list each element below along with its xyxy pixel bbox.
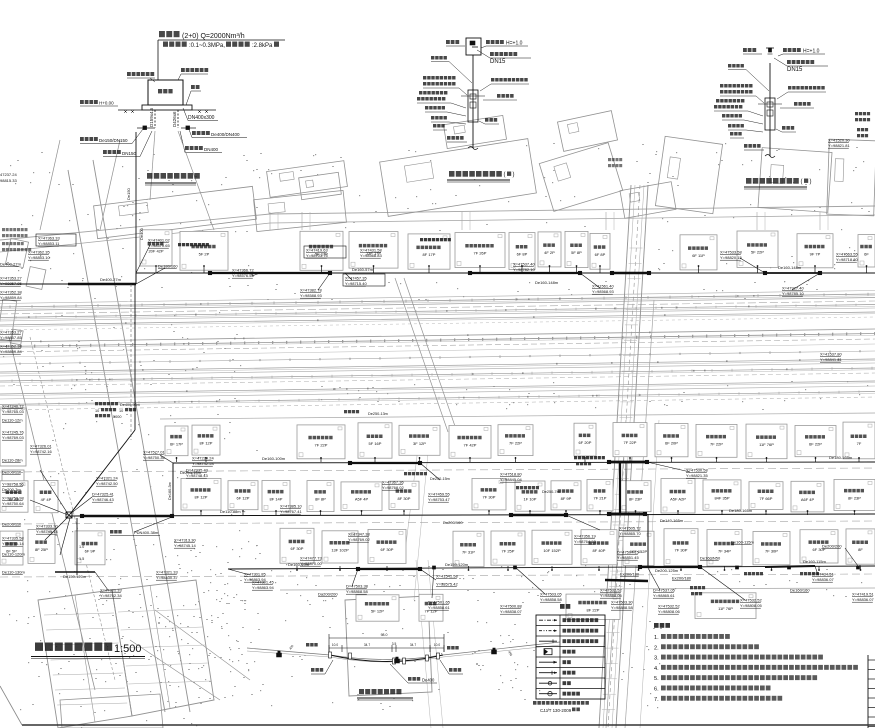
svg-text::2.8kPa: :2.8kPa <box>252 43 273 49</box>
svg-text:Ex200/180: Ex200/180 <box>672 575 692 580</box>
svg-text:6F 8P: 6F 8P <box>517 252 528 257</box>
svg-text:7F: 7F <box>857 441 862 446</box>
svg-text:Da200/200: Da200/200 <box>318 591 338 596</box>
svg-text:Y=98857.85: Y=98857.85 <box>0 335 22 340</box>
svg-text:D=47507.15: D=47507.15 <box>617 549 640 554</box>
svg-text:2.: 2. <box>654 645 659 651</box>
svg-text:Y=98865.61: Y=98865.61 <box>653 593 675 598</box>
svg-text:5F 8P: 5F 8P <box>571 250 582 255</box>
svg-text:1:500: 1:500 <box>114 643 142 655</box>
svg-text:D=47537.05: D=47537.05 <box>653 587 676 592</box>
svg-text:De200/200: De200/200 <box>822 543 842 548</box>
svg-text:Y=98769.02: Y=98769.02 <box>348 537 370 542</box>
svg-text::0.1~0.3MPa,: :0.1~0.3MPa, <box>189 43 225 49</box>
svg-text:Y=98742.16: Y=98742.16 <box>30 449 52 454</box>
svg-text:De160/N50: De160/N50 <box>700 555 721 560</box>
svg-text:8F 40P: 8F 40P <box>593 548 606 553</box>
svg-text:H=+1.0: H=+1.0 <box>803 49 820 55</box>
svg-text:De150-120m: De150-120m <box>63 574 87 579</box>
svg-text:Y=98742.50: Y=98742.50 <box>96 481 118 486</box>
svg-text:De110-12m: De110-12m <box>2 417 23 422</box>
svg-text:De200/110: De200/110 <box>2 469 22 474</box>
svg-text:Y=98859.84: Y=98859.84 <box>0 349 22 354</box>
svg-text:X=47367.36: X=47367.36 <box>382 479 404 484</box>
svg-text:Y=98821.35: Y=98821.35 <box>686 473 708 478</box>
svg-text:47237.24: 47237.24 <box>0 172 17 177</box>
svg-text:X=47245.76: X=47245.76 <box>2 429 24 434</box>
svg-text:X=47401.02: X=47401.02 <box>148 237 170 242</box>
svg-text:X=41537.80: X=41537.80 <box>820 351 842 356</box>
svg-text:1.: 1. <box>654 635 659 641</box>
svg-text:De110-130m: De110-130m <box>2 569 25 574</box>
svg-text:H=+1.0: H=+1.0 <box>506 41 523 47</box>
svg-text:Y=98838.07: Y=98838.07 <box>500 609 522 614</box>
svg-text:Y=98758.56: Y=98758.56 <box>2 481 24 486</box>
svg-text:X=47577.01: X=47577.01 <box>143 449 165 454</box>
svg-text:5F 16P: 5F 16P <box>369 441 382 446</box>
svg-text:De160-3m: De160-3m <box>168 482 172 500</box>
svg-text:10F 152P: 10F 152P <box>543 548 561 553</box>
svg-text:8F 22P: 8F 22P <box>587 607 600 612</box>
svg-text:X=47927.40: X=47927.40 <box>782 285 804 290</box>
svg-text:De200-7m: De200-7m <box>2 487 21 492</box>
svg-text:20F 42P: 20F 42P <box>148 248 163 253</box>
svg-text:8F 23P: 8F 23P <box>629 497 642 502</box>
svg-text:6.: 6. <box>654 687 659 693</box>
svg-text:5F 22P: 5F 22P <box>751 250 764 255</box>
svg-text:8F 14P: 8F 14P <box>270 496 283 501</box>
svg-text:Y=98782.10: Y=98782.10 <box>513 267 535 272</box>
svg-text:7F 22P: 7F 22P <box>624 440 637 445</box>
svg-text:H+0.00: H+0.00 <box>99 101 114 106</box>
svg-text:X=47321.33: X=47321.33 <box>100 587 122 592</box>
svg-text:X=47503.30: X=47503.30 <box>611 599 633 604</box>
svg-text:Y=98868.58: Y=98868.58 <box>346 589 368 594</box>
svg-text:6F 11P: 6F 11P <box>692 253 705 258</box>
svg-text:X=47563.55: X=47563.55 <box>836 251 858 256</box>
svg-text:X=41520.30: X=41520.30 <box>828 137 850 142</box>
svg-text:X=47352.38: X=47352.38 <box>0 343 22 348</box>
svg-text:PDN400-38m: PDN400-38m <box>134 530 159 535</box>
svg-text:Y=98746.43: Y=98746.43 <box>92 497 114 502</box>
svg-text:Y=98742.53: Y=98742.53 <box>192 461 214 466</box>
svg-text:): ) <box>513 172 515 178</box>
svg-text:10: 10 <box>119 409 123 413</box>
svg-text:8F 9P: 8F 9P <box>561 496 572 501</box>
svg-text:Y=98821.81: Y=98821.81 <box>828 143 850 148</box>
svg-text:84F 35P: 84F 35P <box>714 496 729 501</box>
svg-text:Y=98853.11: Y=98853.11 <box>38 241 60 246</box>
svg-text:X=47321.24: X=47321.24 <box>96 475 118 480</box>
svg-text:De400: De400 <box>139 227 144 240</box>
svg-text:7F 25P: 7F 25P <box>502 549 515 554</box>
svg-text:X=47353.27: X=47353.27 <box>0 329 22 334</box>
svg-text:X=47434.51: X=47434.51 <box>812 571 834 576</box>
svg-text:Y=98865.70: Y=98865.70 <box>619 531 641 536</box>
svg-text:Y=98715.40: Y=98715.40 <box>345 281 367 286</box>
svg-text:11F 76P: 11F 76P <box>759 442 774 447</box>
svg-text:De110-28m: De110-28m <box>2 457 23 462</box>
svg-text:6F: 6F <box>864 251 869 256</box>
svg-text:7.: 7. <box>654 697 659 703</box>
svg-text:Y=98888.05: Y=98888.05 <box>600 593 622 598</box>
svg-text:A5F A2P: A5F A2P <box>670 496 686 501</box>
svg-text:7F 30P: 7F 30P <box>765 549 778 554</box>
svg-text:Y=98570.65: Y=98570.65 <box>148 243 170 248</box>
svg-text:De200-125m: De200-125m <box>655 568 679 573</box>
svg-text:6F 9P: 6F 9P <box>85 548 96 553</box>
svg-text:X=47532.52: X=47532.52 <box>600 587 622 592</box>
svg-text:8F 23P: 8F 23P <box>848 495 861 500</box>
svg-text:X=41541.58: X=41541.58 <box>436 573 458 578</box>
svg-text:X=41561.40: X=41561.40 <box>592 283 614 288</box>
svg-text:8F 25P: 8F 25P <box>35 547 48 552</box>
svg-text:6F 22P: 6F 22P <box>809 442 822 447</box>
svg-text:Y=98851.45: Y=98851.45 <box>617 555 639 560</box>
svg-text:Y=98841.81: Y=98841.81 <box>820 357 842 362</box>
svg-text:X=47335.58: X=47335.58 <box>2 535 24 540</box>
svg-text:D=47335.43: D=47335.43 <box>186 467 209 472</box>
svg-text:A5F 4P: A5F 4P <box>355 497 369 502</box>
svg-text:X=47352.38: X=47352.38 <box>0 289 22 294</box>
svg-text:X=47419.51: X=47419.51 <box>852 591 874 596</box>
svg-text:5F 2P: 5F 2P <box>199 251 210 256</box>
svg-text:Y=98703.75: Y=98703.75 <box>306 253 328 258</box>
svg-text:3.: 3. <box>654 656 659 662</box>
svg-text:Y=98857.85: Y=98857.85 <box>0 281 22 286</box>
svg-text:6F 20P: 6F 20P <box>579 440 592 445</box>
svg-text:X=47353.27: X=47353.27 <box>0 275 22 280</box>
svg-text:5F 12P: 5F 12P <box>371 609 384 614</box>
svg-text:X=47333.30: X=47333.30 <box>36 523 58 528</box>
svg-text:7F 30P: 7F 30P <box>675 548 688 553</box>
svg-text:X=47532.52: X=47532.52 <box>740 597 762 602</box>
svg-text:Y=98762.34: Y=98762.34 <box>100 593 122 598</box>
svg-text:34.7: 34.7 <box>364 643 370 647</box>
svg-text:Y=98859.84: Y=98859.84 <box>0 295 22 300</box>
svg-text:Y=98785.10: Y=98785.10 <box>782 291 804 296</box>
svg-text:De400/DN400: De400/DN400 <box>211 132 240 137</box>
svg-text:Y=98575.42: Y=98575.42 <box>436 581 458 586</box>
svg-text:De110-120m: De110-120m <box>2 551 25 556</box>
svg-text:8F 17P: 8F 17P <box>423 252 436 257</box>
svg-text:6F 8P: 6F 8P <box>595 252 606 257</box>
svg-text:X=47532.52: X=47532.52 <box>658 603 680 608</box>
svg-text:Y=98750.36: Y=98750.36 <box>143 455 165 460</box>
svg-text:Du200/160: Du200/160 <box>443 520 463 525</box>
svg-text:De160-100m: De160-100m <box>262 456 286 461</box>
svg-text:7F 26P: 7F 26P <box>474 251 487 256</box>
svg-text:De160-57m: De160-57m <box>352 267 374 272</box>
svg-text:Y=98588.93: Y=98588.93 <box>300 293 322 298</box>
svg-text:D426x6: D426x6 <box>172 111 177 127</box>
svg-text:Y=98765.03: Y=98765.03 <box>2 409 24 414</box>
svg-text:Y=98748.43: Y=98748.43 <box>186 473 208 478</box>
svg-text:Y=98767.41: Y=98767.41 <box>280 509 302 514</box>
svg-text:De250-7m: De250-7m <box>542 490 560 494</box>
svg-text:X=47505.72: X=47505.72 <box>619 525 641 530</box>
svg-text:X=47366.72: X=47366.72 <box>232 267 254 272</box>
svg-text:DN15: DN15 <box>787 67 803 73</box>
svg-text:Y=98845.04: Y=98845.04 <box>500 477 522 482</box>
svg-text:X=47356.19: X=47356.19 <box>574 533 596 538</box>
svg-text:Y=98568.83: Y=98568.83 <box>360 253 382 258</box>
svg-text:10: 10 <box>95 409 99 413</box>
svg-text:Y=98745.14: Y=98745.14 <box>36 529 58 534</box>
svg-text:Y=98888.58: Y=98888.58 <box>611 605 633 610</box>
svg-text:7F 42P: 7F 42P <box>464 442 477 447</box>
svg-text:De160/160: De160/160 <box>790 587 810 592</box>
svg-text:De400-27m: De400-27m <box>100 277 122 282</box>
svg-text:Y=98863.94: Y=98863.94 <box>252 585 274 590</box>
svg-text:A6F 4P: A6F 4P <box>801 497 815 502</box>
svg-text:Y=98764.13: Y=98764.13 <box>574 539 596 544</box>
svg-text:CJJ/T 130-2009: CJJ/T 130-2009 <box>540 708 572 713</box>
svg-text:7F 66P: 7F 66P <box>760 496 773 501</box>
svg-text:Y=98745.14: Y=98745.14 <box>2 541 24 546</box>
svg-text:DN400x300: DN400x300 <box>188 115 215 121</box>
svg-text:7F 22P: 7F 22P <box>710 441 723 446</box>
svg-text:7F 34P: 7F 34P <box>718 548 731 553</box>
svg-text:DN15: DN15 <box>490 59 506 65</box>
svg-text:X=47477.73: X=47477.73 <box>300 555 322 560</box>
svg-text:8F 12P: 8F 12P <box>195 495 208 500</box>
svg-text:De250-13m: De250-13m <box>368 412 388 416</box>
svg-text:D=47501.65: D=47501.65 <box>428 599 451 604</box>
svg-text:De180-165m: De180-165m <box>829 455 853 460</box>
svg-text:8F 12P: 8F 12P <box>200 441 213 446</box>
svg-text:Y=98576.55: Y=98576.55 <box>232 273 254 278</box>
svg-text:Y=98808.06: Y=98808.06 <box>658 609 680 614</box>
svg-text:8F: 8F <box>858 547 863 552</box>
svg-text:D=47325.41: D=47325.41 <box>92 491 115 496</box>
svg-text:(: ( <box>801 179 803 185</box>
svg-text:X=47326.01: X=47326.01 <box>30 443 52 448</box>
svg-text:De150-120m: De150-120m <box>445 562 469 567</box>
svg-text:De160-115m: De160-115m <box>731 539 754 544</box>
svg-text:X=47419.63: X=47419.63 <box>306 247 328 252</box>
svg-text:1.5: 1.5 <box>79 557 84 561</box>
svg-text:Y=98745.14: Y=98745.14 <box>174 543 196 548</box>
svg-text:6F 30P: 6F 30P <box>291 546 304 551</box>
svg-text:Y=98853.10: Y=98853.10 <box>28 255 50 260</box>
svg-text:Y=98870.00: Y=98870.00 <box>300 561 322 566</box>
svg-text:De200/110: De200/110 <box>2 521 22 526</box>
svg-text:Y=98820.15: Y=98820.15 <box>720 255 742 260</box>
svg-text:8F 8P: 8F 8P <box>315 497 326 502</box>
svg-text:De400-27m: De400-27m <box>0 261 22 266</box>
svg-text:9F 7P: 9F 7P <box>810 251 821 256</box>
svg-text:X=47518.80: X=47518.80 <box>500 471 522 476</box>
svg-text:X=47503.05: X=47503.05 <box>540 591 562 596</box>
svg-text:X=47500.88: X=47500.88 <box>500 603 522 608</box>
svg-text:7F 22P: 7F 22P <box>315 442 328 447</box>
svg-text:X=47537.40: X=47537.40 <box>513 261 535 266</box>
svg-text:Y=98830.37: Y=98830.37 <box>156 575 178 580</box>
svg-text:7F 31P: 7F 31P <box>462 550 475 555</box>
svg-text:X=47224.24: X=47224.24 <box>192 455 214 460</box>
svg-text:Y=98836.07: Y=98836.07 <box>852 597 874 602</box>
svg-text:De110-88m: De110-88m <box>220 509 241 514</box>
svg-text:Y=98718.80: Y=98718.80 <box>836 257 858 262</box>
svg-text:X=47347.38: X=47347.38 <box>348 531 370 536</box>
svg-text:De400-93m: De400-93m <box>120 403 140 407</box>
svg-text:7F 22P: 7F 22P <box>509 441 522 446</box>
svg-text:(: ( <box>504 172 506 178</box>
svg-text:De140-165m: De140-165m <box>660 518 684 523</box>
svg-text:DN150: DN150 <box>122 151 137 156</box>
svg-text:De160-148m: De160-148m <box>535 280 559 285</box>
svg-text:7F 21P: 7F 21P <box>594 496 607 501</box>
svg-text:X=47459.55: X=47459.55 <box>428 491 450 496</box>
svg-text:D=47503.38: D=47503.38 <box>346 583 369 588</box>
svg-text:98.0: 98.0 <box>381 633 388 637</box>
svg-text:(2+0) Q=2000Nm³/h: (2+0) Q=2000Nm³/h <box>182 33 245 40</box>
svg-text:X=47431.58: X=47431.58 <box>360 247 382 252</box>
svg-text:Y=98768.02: Y=98768.02 <box>382 485 404 490</box>
svg-text:Y=98750.64: Y=98750.64 <box>2 501 24 506</box>
svg-text:X=47301.85: X=47301.85 <box>244 571 266 576</box>
svg-text:Y=98858.58: Y=98858.58 <box>540 597 562 602</box>
svg-text:3F 12P: 3F 12P <box>413 441 426 446</box>
svg-text:X=47313.30: X=47313.30 <box>174 537 196 542</box>
svg-text:Y=98858.61: Y=98858.61 <box>428 605 450 610</box>
svg-text:5000: 5000 <box>113 415 121 419</box>
svg-text:10.0: 10.0 <box>434 643 440 647</box>
svg-text:D159x4.5: D159x4.5 <box>149 107 154 127</box>
svg-text:6F 17P: 6F 17P <box>170 441 183 446</box>
svg-text:De400: De400 <box>422 678 435 683</box>
svg-text:4.: 4. <box>654 666 659 672</box>
svg-text:De250-15m: De250-15m <box>430 477 450 481</box>
svg-text:): ) <box>810 179 812 185</box>
svg-text:De180/160: De180/160 <box>158 263 178 268</box>
svg-text:X=47321.33: X=47321.33 <box>156 569 178 574</box>
svg-text:X=47363.33: X=47363.33 <box>38 235 60 240</box>
svg-text:DN400: DN400 <box>204 147 219 152</box>
svg-text:1F 10P: 1F 10P <box>524 497 537 502</box>
svg-text:Y=98836.07: Y=98836.07 <box>812 577 834 582</box>
svg-text:X=47533.58: X=47533.58 <box>720 249 742 254</box>
svg-text:98815.33: 98815.33 <box>0 178 17 183</box>
svg-text:X=47301.45: X=47301.45 <box>252 579 274 584</box>
svg-text:8F 30P: 8F 30P <box>398 496 411 501</box>
svg-text:4F 4P: 4F 4P <box>41 497 52 502</box>
svg-text:Y=98769.03: Y=98769.03 <box>2 435 24 440</box>
svg-text:Y=98568.93: Y=98568.93 <box>592 289 614 294</box>
svg-text:Ex200/180: Ex200/180 <box>620 571 640 576</box>
svg-text:10.0: 10.0 <box>332 643 338 647</box>
svg-text:X=47362.35: X=47362.35 <box>28 249 50 254</box>
svg-text:De150: De150 <box>126 187 131 200</box>
svg-text:X=98758.98: X=98758.98 <box>2 495 24 500</box>
svg-text:De150/DN150: De150/DN150 <box>99 138 128 143</box>
svg-text:11F 76P: 11F 76P <box>718 606 733 611</box>
svg-text:X=47385.10: X=47385.10 <box>280 503 302 508</box>
svg-text:7F 30P: 7F 30P <box>483 495 496 500</box>
svg-text:6F 30P: 6F 30P <box>381 547 394 552</box>
svg-text:De160-115m: De160-115m <box>803 559 826 564</box>
svg-text:X=47240.72: X=47240.72 <box>2 403 24 408</box>
svg-text:6F 12P: 6F 12P <box>237 496 250 501</box>
svg-text:13F 102P: 13F 102P <box>331 548 349 553</box>
svg-text:3.5: 3.5 <box>392 642 397 646</box>
svg-text:Y=98808.05: Y=98808.05 <box>740 603 762 608</box>
svg-text:4F 2P: 4F 2P <box>544 250 555 255</box>
svg-text:6F 20P: 6F 20P <box>665 441 678 446</box>
svg-text:5.: 5. <box>654 676 659 682</box>
svg-text:34.7: 34.7 <box>410 643 416 647</box>
svg-text:1.0: 1.0 <box>79 545 84 549</box>
svg-text:De180-165m: De180-165m <box>729 508 753 513</box>
svg-text:De160-148m: De160-148m <box>778 265 802 270</box>
svg-text:Y=98753.47: Y=98753.47 <box>428 497 450 502</box>
